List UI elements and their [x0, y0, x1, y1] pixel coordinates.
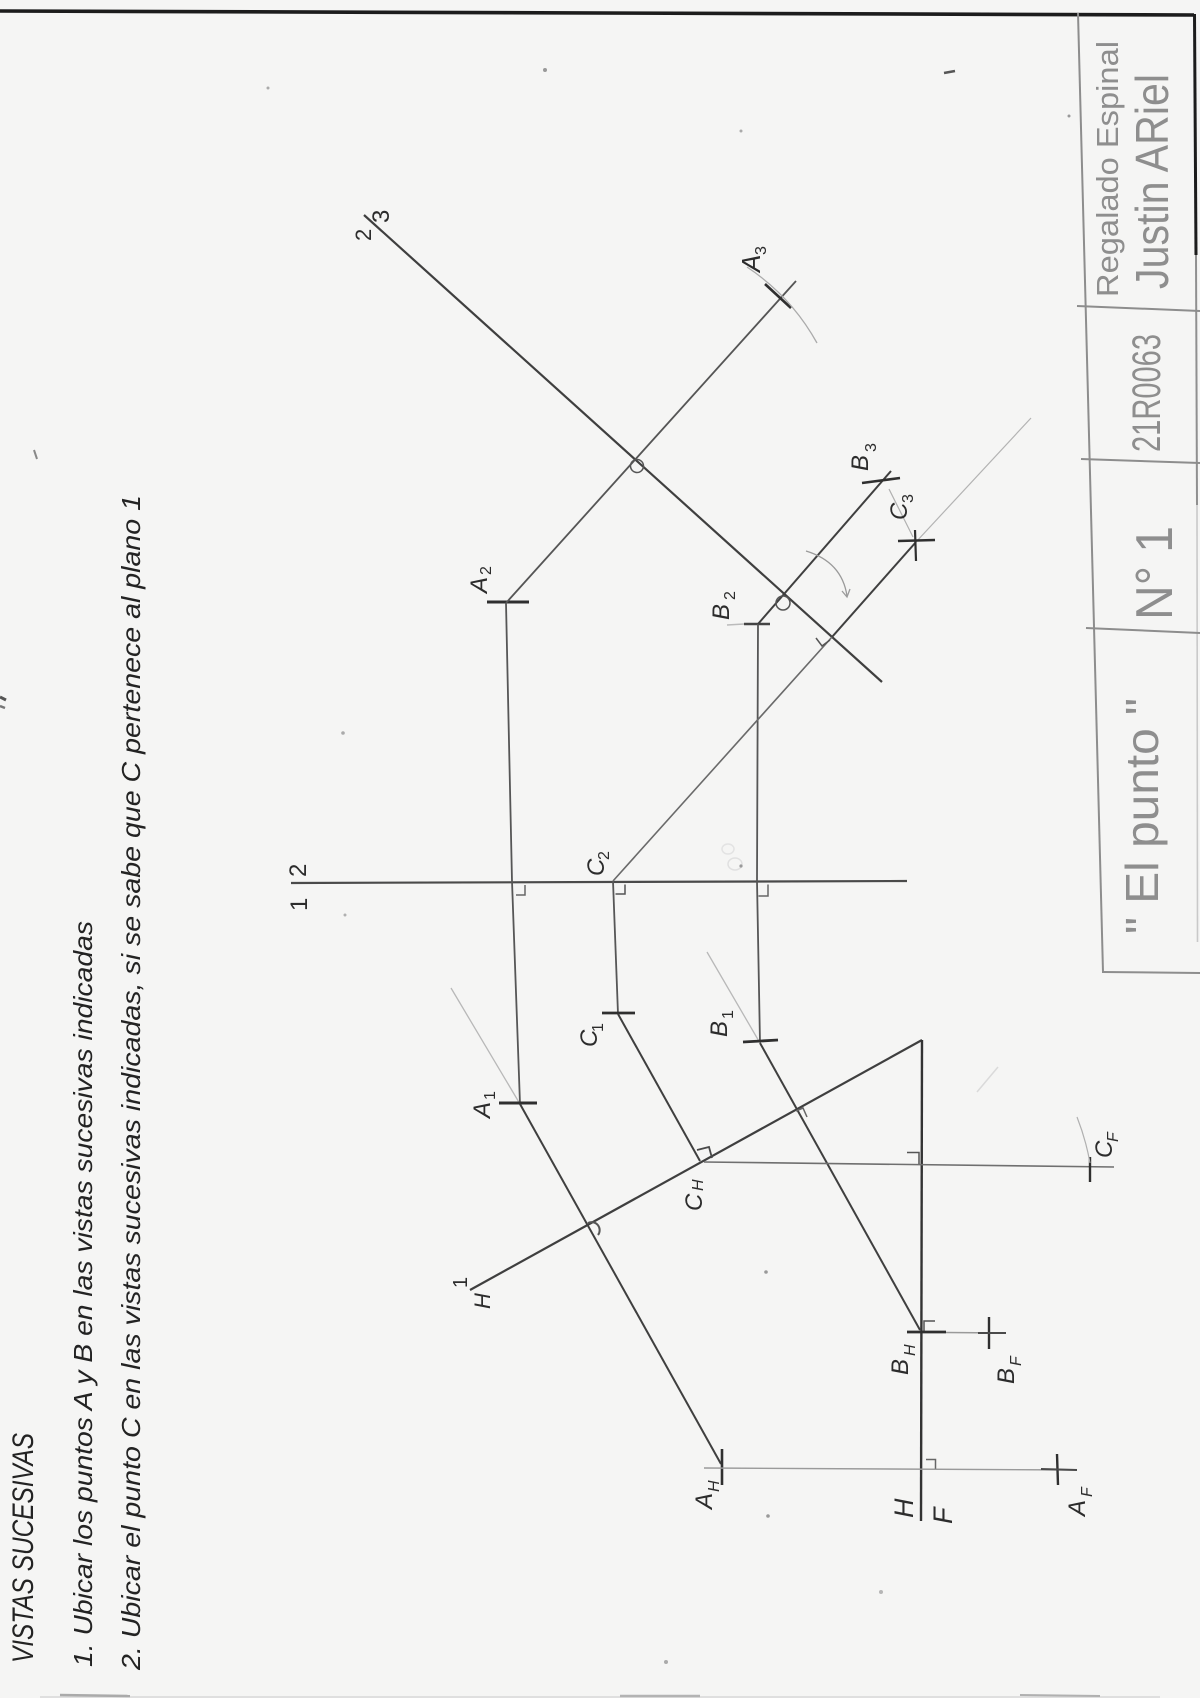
svg-text:3: 3: [863, 443, 880, 452]
svg-text:F: F: [928, 1506, 958, 1524]
svg-text:C: C: [886, 502, 913, 520]
svg-text:H: H: [889, 1498, 919, 1518]
svg-text:2: 2: [596, 851, 613, 860]
svg-text:1: 1: [590, 1023, 607, 1032]
svg-text:1. Ubicar los puntos A y B en: 1. Ubicar los puntos A y B en las vistas…: [68, 921, 98, 1667]
svg-text:B: B: [887, 1359, 914, 1375]
svg-text:3: 3: [753, 246, 770, 255]
svg-text:2. Ubicar el punto C en las v: 2. Ubicar el punto C en las vistas suces…: [116, 495, 146, 1671]
svg-text:1: 1: [720, 1010, 737, 1019]
svg-text:1: 1: [482, 1091, 499, 1100]
svg-text:3: 3: [368, 210, 395, 223]
svg-text:2: 2: [351, 229, 376, 241]
svg-text:A: A: [736, 255, 766, 274]
svg-text:H: H: [902, 1344, 919, 1356]
svg-text:Justin ARiel: Justin ARiel: [1126, 74, 1178, 289]
svg-text:3: 3: [900, 494, 917, 503]
svg-text:H: H: [470, 1293, 495, 1309]
svg-text:F: F: [1105, 1131, 1122, 1142]
svg-text:21R0063: 21R0063: [1125, 334, 1169, 452]
svg-text:B: B: [993, 1368, 1020, 1384]
svg-text:" El punto ": " El punto ": [1116, 698, 1168, 934]
svg-text:2: 2: [285, 864, 312, 877]
svg-text:B: B: [708, 604, 735, 620]
svg-text:2: 2: [478, 566, 495, 575]
svg-text:A: A: [1064, 1500, 1091, 1518]
svg-text:C: C: [681, 1193, 708, 1211]
svg-text:B: B: [847, 455, 874, 471]
svg-text:Regalado Espinal: Regalado Espinal: [1090, 41, 1125, 297]
svg-text:VISTAS SUCESIVAS: VISTAS SUCESIVAS: [7, 1433, 40, 1663]
svg-text:B: B: [706, 1021, 733, 1037]
svg-text:A: A: [691, 1493, 718, 1511]
svg-text:A: A: [466, 577, 493, 595]
svg-text:A: A: [469, 1102, 496, 1120]
svg-text:N° 1: N° 1: [1126, 526, 1184, 620]
svg-text:H: H: [690, 1179, 707, 1191]
svg-text:F: F: [1079, 1486, 1096, 1497]
svg-text:F: F: [1008, 1355, 1025, 1366]
svg-text:2: 2: [722, 591, 739, 600]
svg-text:1: 1: [450, 1277, 472, 1288]
svg-text:1: 1: [286, 898, 313, 911]
svg-text:H: H: [706, 1480, 723, 1492]
